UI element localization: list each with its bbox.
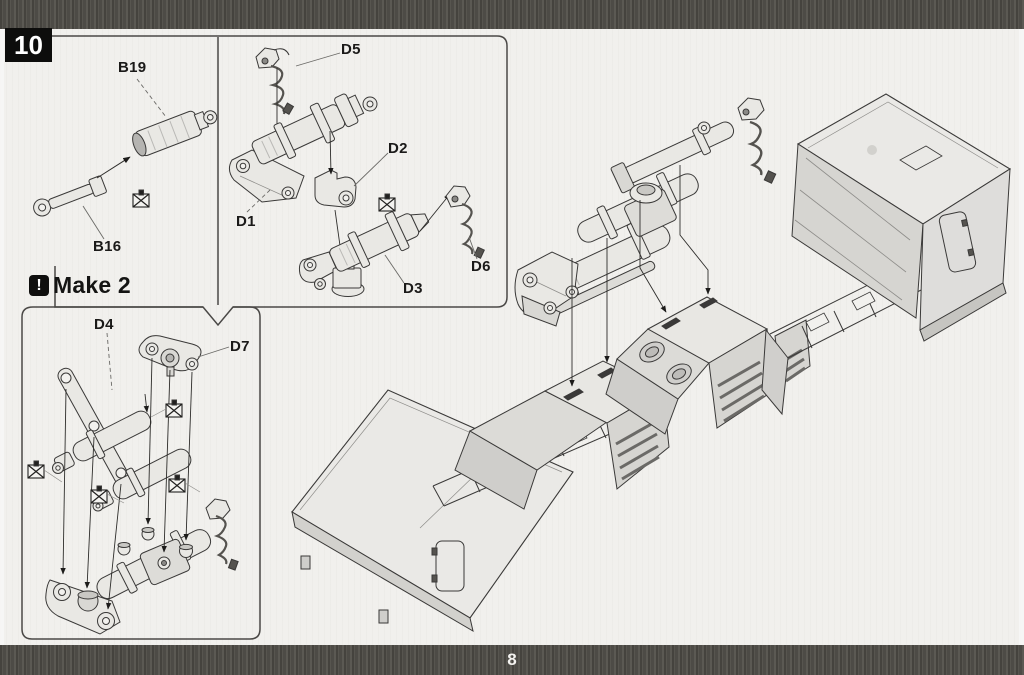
label-leader-d3: [385, 255, 404, 283]
insert-arrow: [97, 157, 130, 178]
part-label-b19: B19: [118, 59, 146, 76]
subassembly-d4-d7: [28, 333, 238, 634]
part-b16-piston-rod: [31, 175, 107, 219]
assembly-diagram: [0, 0, 1024, 675]
do-not-cement-icon: [379, 194, 395, 211]
part-label-d4: D4: [94, 316, 114, 333]
label-leader-b19: [137, 79, 166, 117]
attention-icon: !: [29, 275, 49, 296]
shock-cylinder-1: [53, 404, 157, 474]
part-label-d5: D5: [341, 41, 361, 58]
do-not-cement-icon: [169, 475, 185, 492]
page-bottom-band: 8: [0, 645, 1024, 675]
part-label-d1: D1: [236, 213, 256, 230]
label-leader-d2: [354, 153, 388, 186]
spring-clamp: [738, 98, 764, 120]
suspension-assembly: [515, 98, 776, 326]
part-d6-spring-clamp: [446, 186, 484, 258]
label-leader-d7: [198, 347, 229, 357]
step-number-badge: 10: [5, 28, 52, 62]
do-not-cement-icon: [91, 486, 107, 503]
label-leader-d4: [107, 333, 112, 390]
axle-assembly: [46, 499, 238, 634]
rear-box: [792, 94, 1010, 341]
do-not-cement-icon: [133, 190, 149, 207]
part-d5-spring-clamp: [256, 48, 293, 114]
rear-hull-section: [606, 94, 1010, 434]
front-hull-section: [292, 361, 669, 631]
do-not-cement-icon: [166, 400, 182, 417]
label-leader-b16: [83, 206, 104, 239]
insert-arrow: [420, 194, 450, 231]
make-note-text: Make 2: [53, 272, 131, 299]
subassembly-b19-b16: [31, 79, 221, 239]
part-b19-cylinder: [130, 103, 221, 159]
part-label-d3: D3: [403, 280, 423, 297]
do-not-cement-icon: [28, 461, 44, 478]
part-label-d2: D2: [388, 140, 408, 157]
part-d7-rocker: [139, 336, 201, 376]
mid-body-rear: [606, 297, 810, 434]
part-label-b16: B16: [93, 238, 121, 255]
step-number: 10: [14, 30, 43, 61]
instruction-sheet-page: 10 B19 B16 D5 D2 D1 D3 D6 D4 D7 ! Make 2…: [0, 0, 1024, 675]
label-leader-d5: [296, 53, 340, 66]
make-2-note: ! Make 2: [29, 272, 131, 299]
subassembly-d-parts: [229, 48, 484, 297]
part-d2-bracket: [315, 170, 356, 207]
part-label-d6: D6: [471, 258, 491, 275]
page-number: 8: [507, 650, 516, 670]
part-label-d7: D7: [230, 338, 250, 355]
